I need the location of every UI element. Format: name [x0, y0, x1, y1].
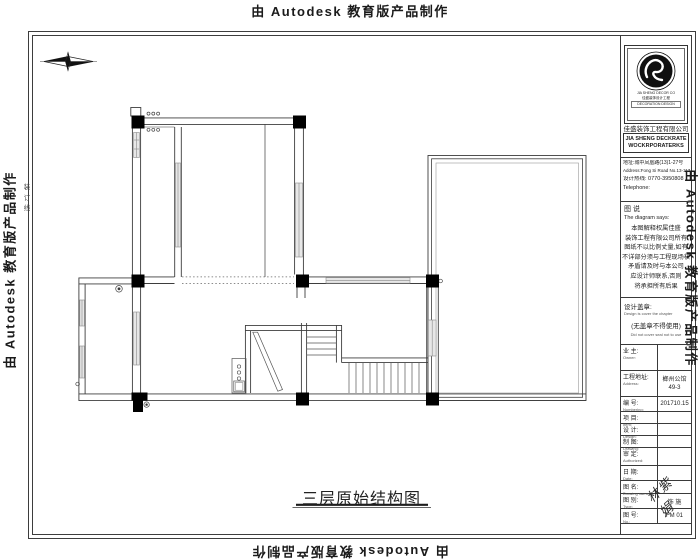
tb-row-drafter: 制 图:Drawing:: [621, 436, 691, 448]
notes-line: 不详部分须与工程现场核: [621, 253, 691, 263]
drawing-sheet: 由 Autodesk 教育版产品制作 由 Autodesk 教育版产品制作 由 …: [0, 0, 700, 560]
autodesk-stamp-bottom: 由 Autodesk 教育版产品制作: [0, 543, 700, 560]
tb-row-item: 项 目:Item:: [621, 412, 691, 424]
notes-line: 将承担所有后果: [621, 282, 691, 292]
floor-plan-canvas: [0, 0, 700, 560]
walls: [79, 108, 587, 401]
seal-label: 设计盖章:: [621, 301, 691, 311]
notes-line: 图纸不以比例丈量,如有: [621, 243, 691, 253]
company-name-cn: 佳盛装饰工程有限公司: [621, 123, 691, 133]
logo-subtext-3: DECORATION DESIGN: [631, 101, 681, 108]
company-address-cn: 地址:城中凤凰路(13)1-27号: [623, 160, 691, 167]
company-name-en: JIA SHENG DECKRATE WOCKRPORATERKS: [623, 133, 689, 153]
tb-row-approver: 审 定:Authorized:: [621, 448, 691, 466]
seal-section: 设计盖章: Design is cover the chapter (无盖章不得…: [621, 298, 691, 345]
title-block: JIA SHENG DECOR CO 佳盛装饰设计工程 DECORATION D…: [620, 35, 691, 535]
company-address-en: Address:Fong Si Road No.13-117: [623, 167, 691, 174]
binding-line-label: 装 订 线: [22, 183, 32, 215]
tb-row-design: 设 计:Design:: [621, 424, 691, 436]
autodesk-stamp-top: 由 Autodesk 教育版产品制作: [0, 1, 700, 20]
pipe-symbols: [76, 112, 443, 407]
logo-subtext-2: 佳盛装饰设计工程: [628, 96, 684, 101]
notes-line: 应设计师联系,否则: [621, 272, 691, 282]
company-logo-box: JIA SHENG DECOR CO 佳盛装饰设计工程 DECORATION D…: [624, 45, 688, 124]
terrace-walls: [428, 156, 586, 401]
autodesk-stamp-left: 由 Autodesk 教育版产品制作: [0, 171, 19, 368]
notes-title-cn: 图 说: [621, 204, 691, 214]
tb-row-owner: 业 主:Owner:: [621, 345, 691, 371]
info-table: 业 主:Owner: 工程地址:Address: 榔州公馆 49-3 编 号:N…: [621, 345, 691, 524]
notes-section: 图 说 The diagram says: 本图解释权属佳盛 装饰工程有限公司所…: [621, 202, 691, 298]
company-logo-icon: [636, 51, 676, 91]
columns: [132, 116, 440, 413]
notes-title-en: The diagram says:: [621, 215, 691, 221]
company-section: JIA SHENG DECOR CO 佳盛装饰设计工程 DECORATION D…: [621, 35, 691, 158]
sheet-border: [29, 32, 696, 539]
seal-warning-en: Did not cover seal not to use: [621, 332, 691, 337]
dashed-wall-lines: [182, 277, 294, 284]
plan-title: 三层原始结构图: [293, 485, 430, 509]
notes-line: 装饰工程有限公司所有: [621, 234, 691, 244]
seal-warning: (无盖章不得使用): [621, 320, 691, 330]
seal-label-en: Design is cover the chapter: [621, 311, 691, 316]
north-compass-icon: [40, 53, 97, 71]
design-hotline: 设计热线: 0770-3950808: [623, 176, 691, 183]
tb-row-drawing-no: 图 号:No.: FM 01: [621, 509, 691, 524]
staircase: [307, 337, 419, 393]
notes-line: 矛盾请及时与本公司: [621, 262, 691, 272]
contact-section: 地址:城中凤凰路(13)1-27号 Address:Fong Si Road N…: [621, 158, 691, 202]
telephone-label: Telephone:: [623, 185, 691, 192]
tb-row-number: 编 号:Numbering: 201710.15: [621, 397, 691, 412]
tb-row-project-address: 工程地址:Address: 榔州公馆 49-3: [621, 371, 691, 397]
fixture-cabinet: [232, 359, 246, 394]
notes-line: 本图解释权属佳盛: [621, 224, 691, 234]
door-leaf: [253, 332, 283, 391]
